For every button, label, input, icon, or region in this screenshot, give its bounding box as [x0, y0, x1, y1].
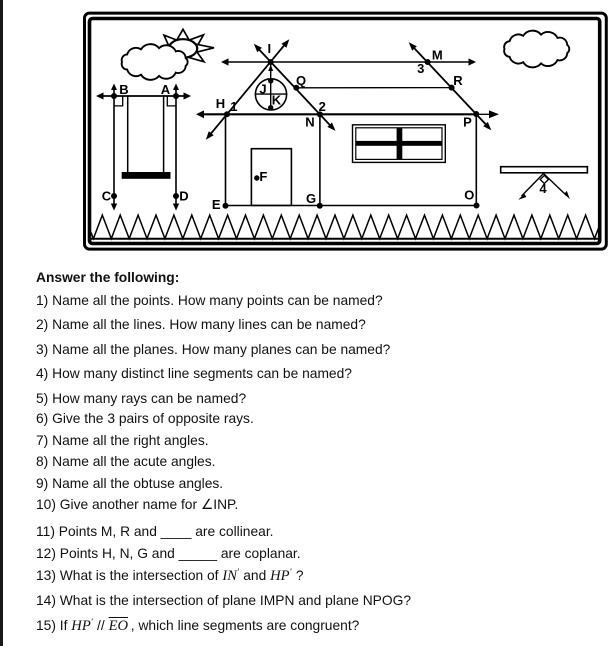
svg-text:N: N: [305, 115, 314, 130]
svg-text:H: H: [216, 96, 225, 111]
svg-text:F: F: [259, 169, 267, 184]
svg-text:B: B: [119, 82, 128, 97]
svg-text:4: 4: [539, 181, 547, 196]
svg-text:3: 3: [417, 61, 424, 76]
svg-text:R: R: [453, 73, 463, 88]
svg-text:2: 2: [319, 99, 326, 114]
svg-text:O: O: [464, 188, 474, 203]
svg-text:J: J: [259, 82, 266, 97]
svg-text:I: I: [267, 41, 271, 56]
svg-text:K: K: [272, 93, 282, 108]
svg-text:A: A: [161, 82, 171, 97]
svg-text:M: M: [432, 48, 443, 63]
svg-text:E: E: [212, 197, 221, 212]
svg-text:G: G: [306, 191, 316, 206]
svg-text:D: D: [179, 189, 188, 204]
svg-text:P: P: [463, 115, 472, 130]
svg-text:1: 1: [230, 99, 237, 114]
svg-text:Q: Q: [296, 73, 306, 88]
svg-text:C: C: [102, 189, 112, 204]
